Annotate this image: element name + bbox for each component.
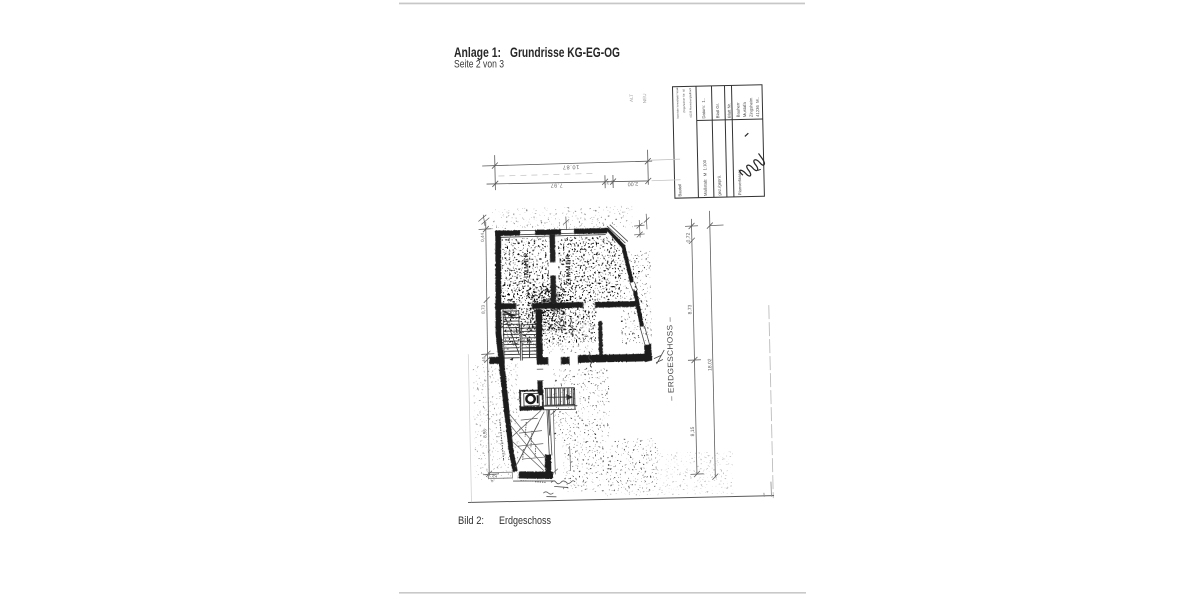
svg-text:Blatt Nr.: Blatt Nr. xyxy=(726,103,731,118)
svg-text:41236 M..: 41236 M.. xyxy=(755,97,760,117)
svg-text:40: 40 xyxy=(481,356,486,362)
svg-text:41236 Moenchengladbach: 41236 Moenchengladbach xyxy=(688,87,693,118)
svg-text:gez./geprü.: gez./geprü. xyxy=(716,175,721,196)
svg-text:18,02: 18,02 xyxy=(707,358,713,371)
svg-text:– ERDGESCHOSS –: – ERDGESCHOSS – xyxy=(665,316,676,400)
svg-text:0,72: 0,72 xyxy=(686,232,692,242)
svg-text:ZIMMER: ZIMMER xyxy=(566,253,573,285)
svg-text:8,73: 8,73 xyxy=(687,304,693,314)
svg-text:10.87: 10.87 xyxy=(562,163,579,169)
svg-text:Zingsheim: Zingsheim xyxy=(748,97,753,117)
svg-text:7.97: 7.97 xyxy=(550,182,563,188)
svg-text:2.00: 2.00 xyxy=(628,180,639,186)
svg-text:Bild 2:: Bild 2: xyxy=(458,515,484,527)
svg-text:0,44: 0,44 xyxy=(480,232,485,241)
svg-text:Seite 2 von 3: Seite 2 von 3 xyxy=(454,59,504,71)
svg-text:8,15: 8,15 xyxy=(690,426,696,436)
svg-text:Bauherr: Bauherr xyxy=(735,102,740,118)
svg-text:Grundrisse KG-EG-OG: Grundrisse KG-EG-OG xyxy=(510,45,620,60)
svg-text:Erdgeschoss: Erdgeschoss xyxy=(499,515,551,527)
svg-text:ALT: ALT xyxy=(629,94,634,102)
svg-text:8,73: 8,73 xyxy=(481,304,486,313)
svg-text:Mustafa: Mustafa xyxy=(742,102,747,118)
svg-text:Blatt Gr.: Blatt Gr. xyxy=(715,103,720,118)
svg-text:Datum: 1..: Datum: 1.. xyxy=(701,98,706,119)
svg-text:Maßstab: M 1:100: Maßstab: M 1:100 xyxy=(702,159,708,196)
svg-text:Zingsheimer Str. 40: Zingsheimer Str. 40 xyxy=(682,88,687,113)
svg-text:1.33: 1.33 xyxy=(604,179,614,185)
svg-text:ZIMMER: ZIMMER xyxy=(524,251,531,283)
svg-text:NEU: NEU xyxy=(642,93,647,103)
svg-text:Bauteil: Bauteil xyxy=(677,184,682,197)
svg-text:Bauvorhaben: Verwendung der Fa: Bauvorhaben: Verwendung der Fassade xyxy=(675,87,680,118)
